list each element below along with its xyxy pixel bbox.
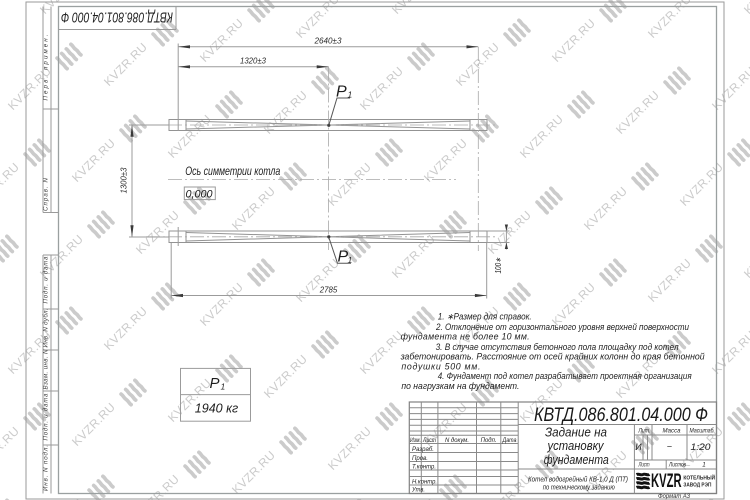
svg-text:1940 кг: 1940 кг [195,402,239,416]
svg-text:Перв. примен.: Перв. примен. [43,35,50,101]
svg-text:Котел водогрейный КВ-1,0 Д (ПТ: Котел водогрейный КВ-1,0 Д (ПТ) [528,476,628,484]
svg-text:установку: установку [547,439,605,453]
svg-text:1: 1 [348,255,353,265]
svg-text:1:20: 1:20 [691,441,712,452]
svg-text:ЗАВОД РЭП: ЗАВОД РЭП [683,483,711,489]
svg-text:Масса: Масса [663,427,681,434]
svg-text:Задание на: Задание на [545,425,607,439]
svg-text:2785: 2785 [319,286,338,295]
svg-text:Инв. N дубл.: Инв. N дубл. [43,309,50,348]
svg-text:фундамента не более 10 мм.: фундамента не более 10 мм. [401,332,530,342]
svg-text:Лист: Лист [422,437,436,444]
svg-text:И: И [635,442,642,452]
svg-text:3. В случае отсутствия бетонно: 3. В случае отсутствия бетонного пола пл… [436,342,679,352]
svg-text:Утв.: Утв. [411,487,425,494]
svg-text:P: P [336,83,347,100]
svg-text:Взам. инв. N: Взам. инв. N [43,349,50,390]
svg-text:–: – [666,442,672,451]
svg-text:фундамента: фундамента [544,453,609,467]
svg-text:Разраб.: Разраб. [412,445,434,453]
svg-text:Формат А3: Формат А3 [658,493,690,500]
svg-text:КВТД.086.801.04.000 Ф: КВТД.086.801.04.000 Ф [61,9,173,26]
svg-text:Лит.: Лит. [638,427,651,434]
svg-text:Инв. N подл.: Инв. N подл. [43,445,50,491]
svg-text:Изм.: Изм. [410,437,421,444]
svg-text:KVZR: KVZR [651,471,682,492]
svg-text:N докум.: N докум. [445,436,469,444]
svg-text:Листов: Листов [668,461,686,468]
svg-text:Дата: Дата [502,437,517,444]
svg-text:P: P [210,375,220,392]
svg-text:1320±3: 1320±3 [240,57,267,66]
svg-text:Подп. и дата: Подп. и дата [43,393,50,441]
svg-text:4. Фундамент под котел разраба: 4. Фундамент под котел разрабатывает про… [438,371,692,381]
svg-text:1: 1 [348,90,353,100]
svg-text:Т.контр.: Т.контр. [412,463,436,470]
svg-text:100∗: 100∗ [494,257,503,273]
svg-text:Пров.: Пров. [412,455,428,462]
svg-text:Подп. и дата: Подп. и дата [43,256,50,304]
svg-text:1: 1 [702,461,706,468]
svg-text:Лист: Лист [638,461,650,468]
svg-text:Масштаб: Масштаб [690,426,714,434]
svg-text:1300±3: 1300±3 [120,167,129,194]
svg-text:1. ∗Размер для справок.: 1. ∗Размер для справок. [438,311,532,321]
svg-text:2. Отклонение от горизонтально: 2. Отклонение от горизонтального уровня … [435,322,689,332]
svg-text:Подп.: Подп. [481,436,497,444]
svg-text:КВТД.086.801.04.000 Ф: КВТД.086.801.04.000 Ф [534,405,708,426]
svg-text:забетонировать. Расстояние от: забетонировать. Расстояние от осей крайн… [400,352,705,362]
svg-text:подушки 500 мм.: подушки 500 мм. [401,361,480,371]
svg-text:0,000: 0,000 [186,188,214,200]
svg-text:по нагрузкам на фундамент.: по нагрузкам на фундамент. [401,381,519,391]
svg-text:КОТЕЛЬНЫЙ: КОТЕЛЬНЫЙ [683,473,715,481]
svg-text:2640±3: 2640±3 [313,37,342,46]
svg-text:по техническому заданию: по техническому заданию [543,484,616,492]
svg-text:1: 1 [221,382,226,392]
svg-text:Ось симметрии котла: Ось симметрии котла [185,164,280,178]
svg-text:Справ. N: Справ. N [43,177,50,211]
svg-text:Н.контр.: Н.контр. [412,478,437,485]
